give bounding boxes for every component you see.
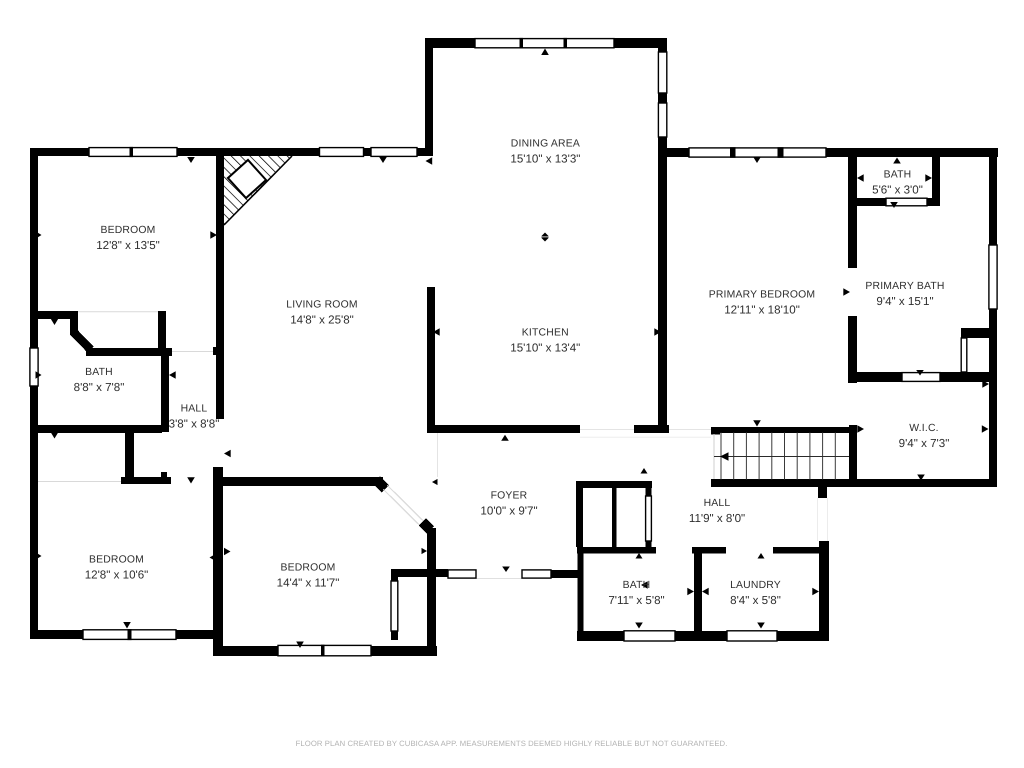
svg-text:DINING AREA: DINING AREA: [511, 139, 580, 150]
svg-text:BATH: BATH: [623, 580, 651, 591]
svg-text:8'4" x 5'8": 8'4" x 5'8": [730, 594, 781, 607]
svg-text:10'0" x 9'7": 10'0" x 9'7": [480, 505, 537, 518]
svg-text:15'10" x 13'4": 15'10" x 13'4": [510, 342, 580, 355]
svg-text:9'4" x 7'3": 9'4" x 7'3": [899, 437, 950, 450]
svg-text:14'8" x 25'8": 14'8" x 25'8": [290, 314, 354, 327]
svg-text:HALL: HALL: [704, 498, 731, 509]
svg-text:BEDROOM: BEDROOM: [100, 225, 155, 236]
svg-text:W.I.C.: W.I.C.: [909, 423, 939, 434]
svg-text:PRIMARY BATH: PRIMARY BATH: [865, 281, 944, 292]
svg-text:12'11" x 18'10": 12'11" x 18'10": [724, 304, 800, 317]
svg-text:HALL: HALL: [181, 404, 208, 415]
svg-text:KITCHEN: KITCHEN: [522, 328, 569, 339]
svg-text:12'8" x 13'5": 12'8" x 13'5": [96, 239, 160, 252]
svg-text:11'9" x 8'0": 11'9" x 8'0": [689, 512, 745, 525]
svg-text:LIVING ROOM: LIVING ROOM: [286, 300, 357, 311]
svg-text:BATH: BATH: [884, 170, 912, 181]
svg-text:8'8" x 7'8": 8'8" x 7'8": [74, 381, 125, 394]
svg-text:5'6" x 3'0": 5'6" x 3'0": [872, 184, 923, 197]
svg-text:BATH: BATH: [85, 367, 113, 378]
svg-text:9'4" x 15'1": 9'4" x 15'1": [876, 295, 933, 308]
svg-text:FLOOR PLAN CREATED BY CUBICASA: FLOOR PLAN CREATED BY CUBICASA APP. MEAS…: [296, 739, 728, 748]
svg-text:12'8" x 10'6": 12'8" x 10'6": [85, 569, 149, 582]
svg-text:15'10" x 13'3": 15'10" x 13'3": [510, 153, 580, 166]
svg-text:BEDROOM: BEDROOM: [280, 563, 335, 574]
svg-text:14'4" x 11'7": 14'4" x 11'7": [277, 577, 340, 590]
svg-text:7'11" x 5'8": 7'11" x 5'8": [608, 594, 664, 607]
svg-text:3'8" x 8'8": 3'8" x 8'8": [169, 418, 220, 431]
svg-text:FOYER: FOYER: [491, 491, 528, 502]
svg-text:LAUNDRY: LAUNDRY: [730, 580, 781, 591]
svg-text:PRIMARY BEDROOM: PRIMARY BEDROOM: [709, 290, 816, 301]
svg-text:BEDROOM: BEDROOM: [89, 555, 144, 566]
